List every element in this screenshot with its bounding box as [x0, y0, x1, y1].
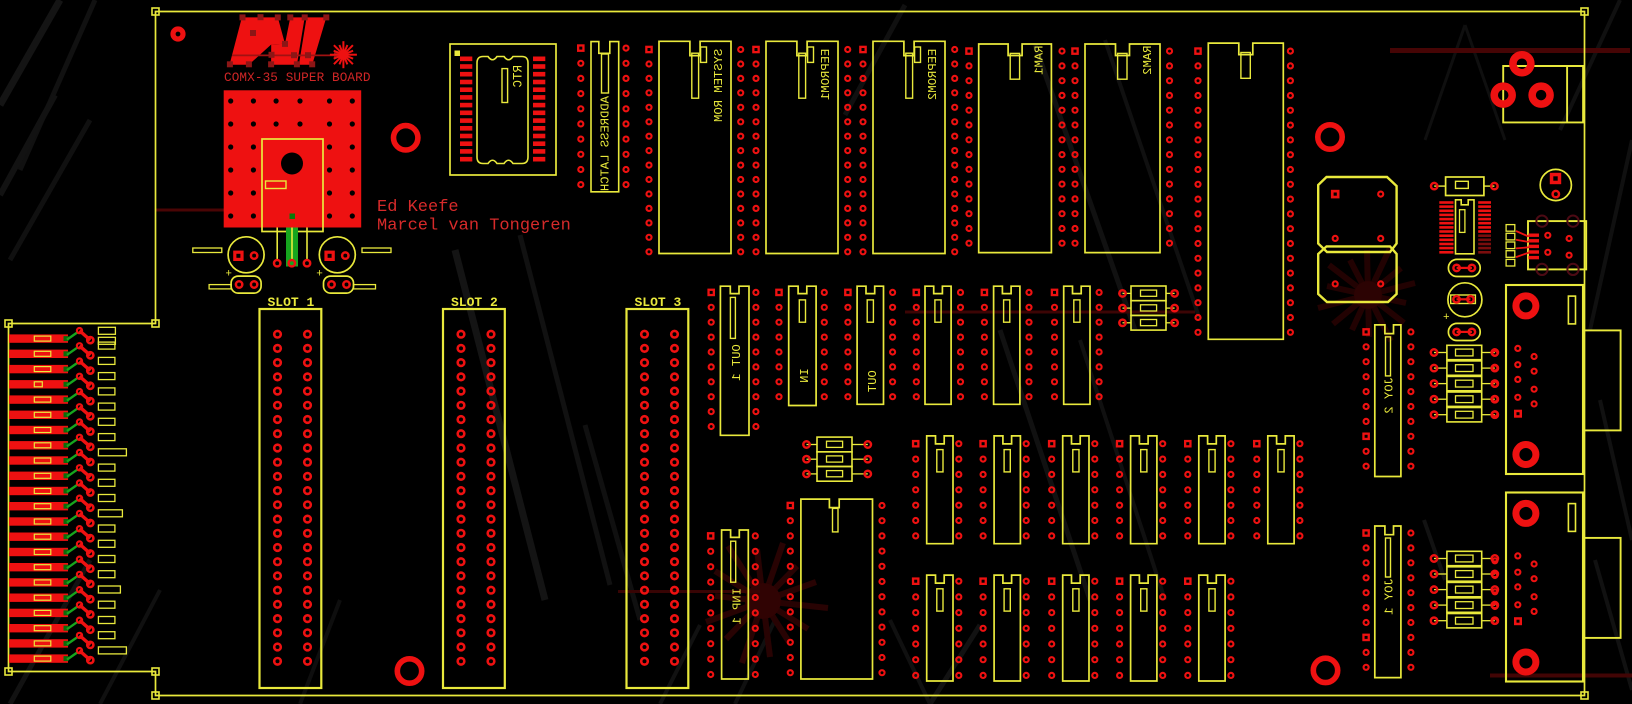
svg-text:+: + [225, 269, 232, 281]
svg-text:EEPROM2: EEPROM2 [926, 49, 940, 100]
svg-text:ADDRESS LATCH: ADDRESS LATCH [599, 96, 613, 191]
svg-text:OUT: OUT [866, 370, 880, 392]
svg-text:EEPROM1: EEPROM1 [819, 49, 833, 100]
svg-text:RTC: RTC [512, 65, 526, 88]
svg-text:+: + [316, 269, 323, 281]
svg-text:Marcel van Tongeren: Marcel van Tongeren [377, 217, 571, 236]
svg-text:SYSTEM ROM: SYSTEM ROM [712, 49, 726, 122]
svg-text:IN: IN [798, 368, 812, 383]
svg-text:COMX-35 SUPER BOARD: COMX-35 SUPER BOARD [224, 70, 371, 85]
svg-text:OUT 1: OUT 1 [730, 344, 744, 381]
svg-text:INP 1: INP 1 [730, 588, 744, 625]
svg-text:Ed Keefe: Ed Keefe [377, 198, 459, 217]
svg-text:JOY 1: JOY 1 [1383, 578, 1397, 615]
svg-text:RAM1: RAM1 [1032, 46, 1046, 75]
svg-text:SLOT 1: SLOT 1 [268, 295, 315, 310]
svg-text:RAM2: RAM2 [1141, 46, 1155, 75]
svg-text:SLOT 3: SLOT 3 [635, 295, 682, 310]
svg-text:JOY 2: JOY 2 [1383, 377, 1397, 414]
svg-text:SLOT 2: SLOT 2 [451, 295, 498, 310]
svg-text:+: + [1443, 312, 1450, 324]
